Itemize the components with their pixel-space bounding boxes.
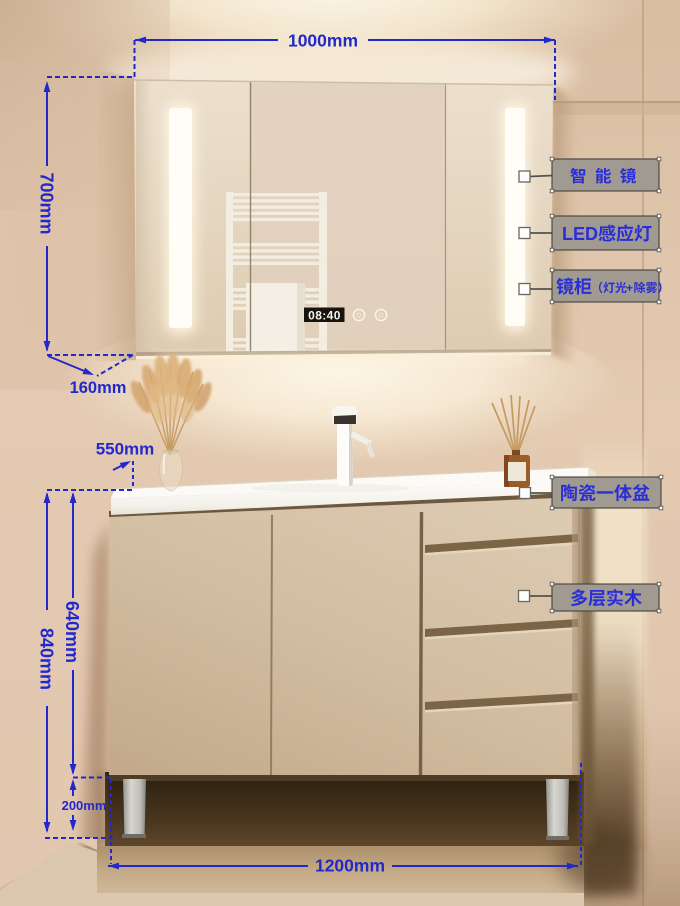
svg-text:1000mm: 1000mm (288, 31, 358, 51)
svg-text:08:40: 08:40 (308, 309, 341, 323)
svg-text:LED: LED (562, 224, 598, 244)
svg-text:1200mm: 1200mm (315, 856, 385, 876)
svg-text:160mm: 160mm (70, 379, 127, 397)
svg-text:640mm: 640mm (62, 601, 82, 663)
svg-text:+: + (626, 281, 633, 295)
svg-text:200mm: 200mm (62, 798, 107, 813)
svg-text:840mm: 840mm (37, 628, 57, 690)
svg-text:700mm: 700mm (37, 172, 57, 234)
svg-text:550mm: 550mm (96, 440, 155, 459)
